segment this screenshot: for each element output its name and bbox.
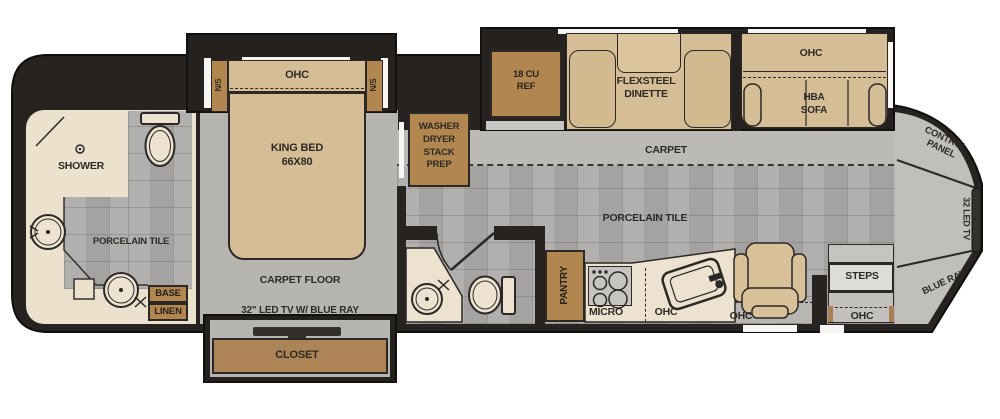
halfbath-door: [437, 233, 494, 270]
floorplan: SHOWER PORCELAIN TILE BASE LINEN N/S N/S…: [0, 0, 1000, 419]
rear-toilet: [141, 113, 179, 166]
halfbath-corner-sink: [406, 248, 462, 322]
vanity-sink-rear: [30, 215, 65, 249]
cap-tv-label: 32 LED TV: [960, 184, 971, 254]
linen-cabinet-label: LINEN: [148, 306, 188, 318]
base-cabinet-label: BASE: [148, 288, 188, 300]
kitchen-ohc-label: OHC: [636, 306, 696, 319]
kitchen-sink: [661, 257, 728, 311]
captain-chair: [734, 243, 806, 318]
pantry-label: PANTRY: [559, 253, 572, 317]
bed-ohc-label: OHC: [247, 69, 347, 83]
washer-prep-label: WASHER DRYER STACK PREP: [408, 121, 470, 172]
cooktop-burners: [592, 270, 627, 308]
fixtures-layer: [0, 0, 1000, 419]
sofa-line1: HBA: [784, 92, 844, 105]
cap-tv-bar: [972, 188, 981, 252]
washer-line4: PREP: [408, 159, 470, 172]
king-bed-line1: KING BED: [228, 142, 366, 156]
steps-label: STEPS: [830, 270, 894, 283]
carpet-floor-label: CARPET FLOOR: [230, 274, 370, 287]
washer-line2: DRYER: [408, 134, 470, 147]
halfbath-toilet: [469, 277, 515, 315]
fridge-line1: 18 CU: [490, 69, 562, 81]
dinette-label: FLEXSTEEL DINETTE: [596, 75, 696, 101]
closet-label: CLOSET: [247, 349, 347, 363]
bedroom-tv-label: 32" LED TV W/ BLUE RAY: [210, 305, 390, 318]
carpet-label: CARPET: [616, 144, 716, 157]
king-bed-label: KING BED 66X80: [228, 142, 366, 170]
king-bed-line2: 66X80: [228, 156, 366, 170]
sofa-line2: SOFA: [784, 105, 844, 118]
hba-sofa-label: HBA SOFA: [784, 92, 844, 117]
nightstand-left-label: N/S: [214, 60, 224, 110]
shower-label: SHOWER: [36, 160, 126, 173]
nightstand-right-label: N/S: [369, 60, 379, 110]
fridge-label: 18 CU REF: [490, 69, 562, 93]
washer-line3: STACK: [408, 147, 470, 160]
seat-ohc-label: OHC: [716, 310, 766, 323]
steps-ohc-label: OHC: [832, 310, 892, 323]
sofa-ohc-label: OHC: [761, 47, 861, 60]
bath-floor-label: PORCELAIN TILE: [71, 236, 191, 248]
dinette-line2: DINETTE: [596, 88, 696, 101]
micro-label: MICRO: [576, 306, 636, 319]
dinette-line1: FLEXSTEEL: [596, 75, 696, 88]
vanity-corner-box: [74, 279, 94, 299]
shower-drain-dot: [79, 148, 82, 151]
fridge-line2: REF: [490, 81, 562, 93]
washer-line1: WASHER: [408, 121, 470, 134]
shower-glass-line: [36, 117, 64, 146]
vanity-sink-front: [104, 273, 146, 307]
main-tile-label: PORCELAIN TILE: [595, 212, 695, 225]
